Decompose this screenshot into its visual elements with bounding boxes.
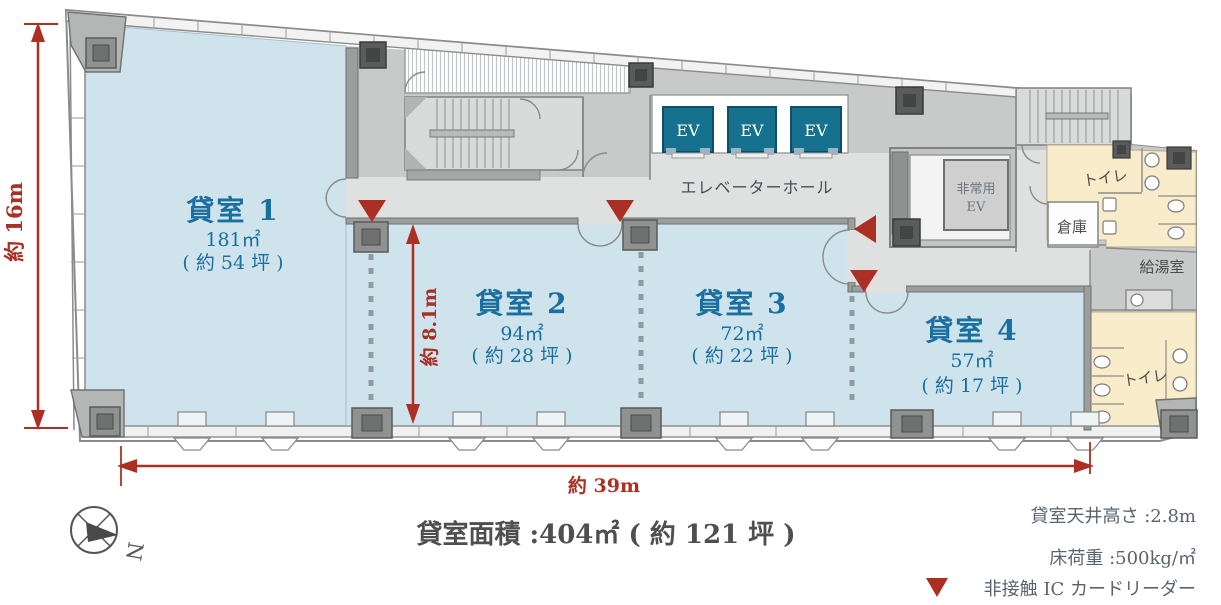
dimension-39m: 約 39m (117, 442, 1094, 497)
dimension-16m: 約 16m (2, 22, 68, 430)
ev-label-3: EV (804, 121, 828, 140)
dimension-depth-label: 約 16m (2, 182, 27, 262)
dimension-room-depth-label: 約 8.1m (418, 288, 441, 367)
room-1-tsubo: ( 約 54 坪 ) (182, 252, 283, 274)
room-3-name: 貸室 3 (695, 287, 788, 320)
room-2-area: 94㎡ (500, 322, 543, 345)
compass: N (71, 507, 148, 562)
elevator-bank: EV EV EV (652, 95, 848, 158)
dimension-width-label: 約 39m (568, 474, 640, 497)
elevator-hall-label: エレベーターホール (680, 178, 833, 197)
room-1-name: 貸室 1 (186, 194, 279, 227)
legend-triangle-icon (926, 578, 948, 597)
storage-label: 倉庫 (1057, 218, 1087, 236)
room-2-name: 貸室 2 (475, 287, 568, 320)
room-4-name: 貸室 4 (925, 314, 1018, 347)
room-3-tsubo: ( 約 22 坪 ) (691, 345, 792, 367)
total-area-summary: 貸室面積 :404㎡ ( 約 121 坪 ) (415, 519, 795, 550)
room-2-tsubo: ( 約 28 坪 ) (471, 345, 572, 367)
room-4-area: 57㎡ (950, 349, 993, 372)
floor-load-spec: 床荷重 :500kg/㎡ (1049, 547, 1196, 569)
ev-label-1: EV (676, 121, 700, 140)
room-1-area: 181㎡ (205, 228, 260, 251)
ev-label-2: EV (740, 121, 764, 140)
emergency-ev-label-line2: EV (967, 200, 986, 215)
floor-plan-page: EV EV EV 非常用 EV トイレ 倉庫 (0, 0, 1221, 605)
compass-north-label: N (121, 540, 148, 562)
kitchenette-label: 給湯室 (1139, 258, 1184, 276)
room-3-area: 72㎡ (720, 322, 763, 345)
room-4-tsubo: ( 約 17 坪 ) (921, 375, 1022, 397)
legend-ic-card-reader: 非接触 IC カードリーダー (926, 578, 1196, 600)
emergency-ev-label-line1: 非常用 (956, 182, 995, 197)
ceiling-height-spec: 貸室天井高さ :2.8m (1031, 506, 1196, 527)
legend-ic-reader-label: 非接触 IC カードリーダー (984, 579, 1196, 600)
floor-plan-drawing: EV EV EV 非常用 EV トイレ 倉庫 (0, 0, 1221, 605)
